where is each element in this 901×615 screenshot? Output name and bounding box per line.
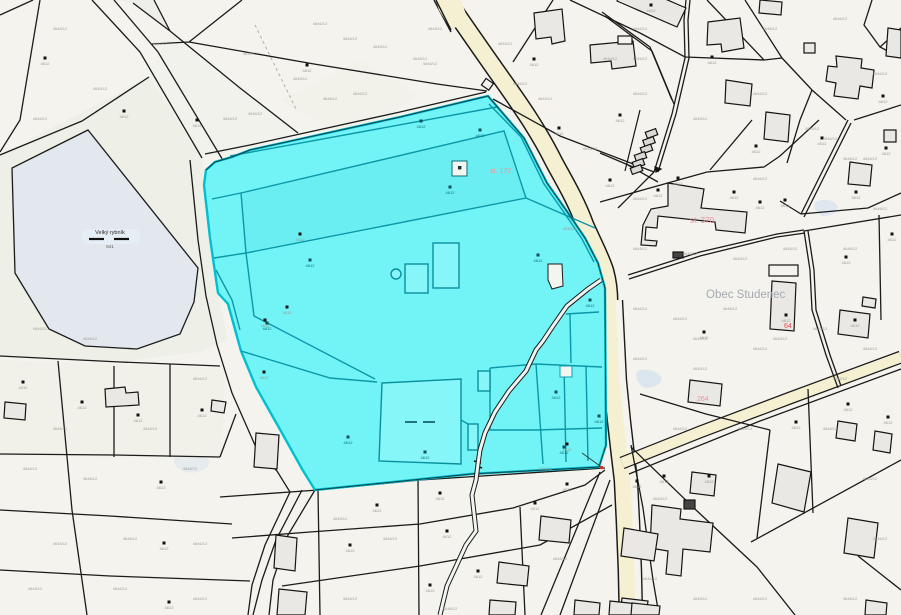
svg-text:4646/12: 4646/12 <box>738 426 753 431</box>
svg-text:Velký rybník: Velký rybník <box>95 230 125 236</box>
svg-text:4646/12: 4646/12 <box>343 596 358 601</box>
svg-text:4646/12: 4646/12 <box>863 156 878 161</box>
svg-text:4646/12: 4646/12 <box>753 176 768 181</box>
svg-text:64: 64 <box>784 323 792 330</box>
svg-text:4612: 4612 <box>595 419 605 424</box>
svg-text:4646/12: 4646/12 <box>843 246 858 251</box>
svg-text:4646/12: 4646/12 <box>693 366 708 371</box>
svg-text:4612: 4612 <box>752 149 762 154</box>
svg-text:4612: 4612 <box>708 60 718 65</box>
svg-text:4646/12: 4646/12 <box>693 336 708 341</box>
svg-text:4612: 4612 <box>882 151 892 156</box>
svg-text:4646/12: 4646/12 <box>753 91 768 96</box>
svg-text:4612: 4612 <box>756 205 766 210</box>
svg-text:4612: 4612 <box>373 508 383 513</box>
svg-text:4612: 4612 <box>818 141 828 146</box>
svg-text:4646/12: 4646/12 <box>683 251 698 256</box>
svg-text:4646/12: 4646/12 <box>833 376 848 381</box>
svg-text:4646/12: 4646/12 <box>583 146 598 151</box>
svg-text:4612: 4612 <box>134 418 144 423</box>
svg-text:4646/12: 4646/12 <box>313 21 328 26</box>
svg-text:4646/12: 4646/12 <box>513 81 528 86</box>
svg-text:4646/12: 4646/12 <box>813 326 828 331</box>
svg-text:4612: 4612 <box>563 487 573 492</box>
svg-text:4612: 4612 <box>879 99 889 104</box>
svg-text:4612: 4612 <box>41 61 51 66</box>
svg-text:4612: 4612 <box>792 425 802 430</box>
svg-text:4612: 4612 <box>476 133 486 138</box>
svg-text:4612: 4612 <box>306 263 316 268</box>
svg-text:4612: 4612 <box>421 455 431 460</box>
svg-text:4646/12: 4646/12 <box>823 136 838 141</box>
svg-text:4646/12: 4646/12 <box>33 326 48 331</box>
svg-text:4646/12: 4646/12 <box>553 556 568 561</box>
svg-text:4612: 4612 <box>888 237 898 242</box>
svg-text:4612: 4612 <box>443 534 453 539</box>
svg-text:4646/12: 4646/12 <box>83 336 98 341</box>
svg-text:4646/12: 4646/12 <box>773 336 788 341</box>
svg-text:4612: 4612 <box>346 548 356 553</box>
svg-text:4646/12: 4646/12 <box>423 61 438 66</box>
svg-text:4612: 4612 <box>446 190 456 195</box>
svg-text:4646/12: 4646/12 <box>833 16 848 21</box>
svg-text:4646/12: 4646/12 <box>633 306 648 311</box>
svg-text:Obec Studenec: Obec Studenec <box>706 289 786 301</box>
svg-text:4646/12: 4646/12 <box>873 206 888 211</box>
svg-text:4646/12: 4646/12 <box>53 26 68 31</box>
svg-text:4612: 4612 <box>283 310 293 315</box>
svg-text:4646/12: 4646/12 <box>223 116 238 121</box>
svg-text:4612: 4612 <box>165 605 175 610</box>
svg-text:4646/12: 4646/12 <box>783 246 798 251</box>
svg-text:4646/12: 4646/12 <box>633 246 648 251</box>
svg-text:4646/12: 4646/12 <box>343 36 358 41</box>
svg-text:4646/12: 4646/12 <box>723 306 738 311</box>
svg-text:4612: 4612 <box>781 203 791 208</box>
svg-text:4646/12: 4646/12 <box>733 256 748 261</box>
svg-text:4612: 4612 <box>426 588 436 593</box>
svg-text:4646/12: 4646/12 <box>143 426 158 431</box>
svg-text:4646/12: 4646/12 <box>863 346 878 351</box>
svg-text:4646/12: 4646/12 <box>843 156 858 161</box>
svg-text:4646/12: 4646/12 <box>843 596 858 601</box>
svg-text:4646/12: 4646/12 <box>443 606 458 611</box>
svg-text:4646/12: 4646/12 <box>673 426 688 431</box>
svg-text:641: 641 <box>106 244 114 249</box>
svg-text:4646/12: 4646/12 <box>498 41 513 46</box>
svg-text:4646/12: 4646/12 <box>53 426 68 431</box>
svg-text:4646/12: 4646/12 <box>28 586 43 591</box>
svg-text:4612: 4612 <box>530 62 540 67</box>
svg-text:4612: 4612 <box>263 326 273 331</box>
svg-text:4612: 4612 <box>531 506 541 511</box>
svg-text:4646/12: 4646/12 <box>538 466 553 471</box>
svg-text:4646/12: 4646/12 <box>805 126 820 131</box>
svg-text:4612: 4612 <box>534 258 544 263</box>
svg-text:4646/12: 4646/12 <box>633 26 648 31</box>
svg-text:4646/12: 4646/12 <box>383 536 398 541</box>
svg-text:4646/12: 4646/12 <box>863 476 878 481</box>
svg-text:4612: 4612 <box>616 118 626 123</box>
svg-text:4646/12: 4646/12 <box>193 541 208 546</box>
svg-text:4646/12: 4646/12 <box>333 516 348 521</box>
svg-text:4612: 4612 <box>705 479 715 484</box>
svg-text:4646/12: 4646/12 <box>873 536 888 541</box>
svg-text:4646/12: 4646/12 <box>693 596 708 601</box>
svg-text:4646/12: 4646/12 <box>693 116 708 121</box>
svg-text:4646/12: 4646/12 <box>643 576 658 581</box>
svg-text:4646/12: 4646/12 <box>823 426 838 431</box>
svg-text:4646/12: 4646/12 <box>293 76 308 81</box>
svg-text:4646/12: 4646/12 <box>563 226 578 231</box>
svg-text:4646/12: 4646/12 <box>673 316 688 321</box>
svg-text:4646/12: 4646/12 <box>763 26 778 31</box>
svg-text:4612: 4612 <box>560 450 570 455</box>
svg-text:264: 264 <box>697 396 709 403</box>
svg-text:4612: 4612 <box>884 420 894 425</box>
svg-text:4612: 4612 <box>157 485 167 490</box>
svg-text:4646/12: 4646/12 <box>633 91 648 96</box>
svg-text:st. 370: st. 370 <box>690 216 715 225</box>
svg-text:4646/12: 4646/12 <box>353 91 368 96</box>
svg-text:4646/12: 4646/12 <box>193 376 208 381</box>
svg-text:4612: 4612 <box>120 114 130 119</box>
svg-text:4612: 4612 <box>844 407 854 412</box>
svg-text:4612: 4612 <box>296 237 306 242</box>
svg-text:4646/12: 4646/12 <box>873 71 888 76</box>
svg-text:4612: 4612 <box>586 303 596 308</box>
svg-text:4646/12: 4646/12 <box>153 41 168 46</box>
svg-text:4646/12: 4646/12 <box>243 51 258 56</box>
svg-text:4646/12: 4646/12 <box>603 56 618 61</box>
svg-text:4646/12: 4646/12 <box>753 596 768 601</box>
svg-text:4612: 4612 <box>654 193 664 198</box>
svg-text:4646/12: 4646/12 <box>83 476 98 481</box>
svg-text:4646/12: 4646/12 <box>323 96 338 101</box>
svg-text:4612: 4612 <box>417 124 427 129</box>
svg-text:4612: 4612 <box>633 484 643 489</box>
svg-text:4612: 4612 <box>552 395 562 400</box>
svg-text:4612: 4612 <box>436 496 446 501</box>
svg-text:4612: 4612 <box>851 323 861 328</box>
svg-text:4612: 4612 <box>674 181 684 186</box>
svg-text:4646/12: 4646/12 <box>653 496 668 501</box>
svg-text:4646/12: 4646/12 <box>538 96 553 101</box>
svg-text:4612: 4612 <box>606 183 616 188</box>
svg-text:4612: 4612 <box>660 479 670 484</box>
svg-text:4646/12: 4646/12 <box>373 44 388 49</box>
svg-text:4646/12: 4646/12 <box>633 196 648 201</box>
svg-text:4612: 4612 <box>842 260 852 265</box>
svg-text:4612: 4612 <box>730 195 740 200</box>
svg-text:4646/12: 4646/12 <box>183 466 198 471</box>
svg-text:4646/12: 4646/12 <box>113 586 128 591</box>
svg-text:4646/12: 4646/12 <box>248 111 263 116</box>
svg-text:4612: 4612 <box>198 413 208 418</box>
svg-text:4612: 4612 <box>303 68 313 73</box>
svg-text:4646/12: 4646/12 <box>93 86 108 91</box>
svg-text:4612: 4612 <box>260 375 270 380</box>
svg-text:4646/12: 4646/12 <box>633 356 648 361</box>
svg-text:4612: 4612 <box>78 405 88 410</box>
svg-text:4646/12: 4646/12 <box>23 466 38 471</box>
svg-text:4646/12: 4646/12 <box>123 536 138 541</box>
svg-text:4646/12: 4646/12 <box>193 596 208 601</box>
svg-text:st. 172: st. 172 <box>490 168 511 175</box>
svg-text:4612: 4612 <box>19 385 29 390</box>
svg-text:4612: 4612 <box>647 8 657 13</box>
svg-text:4646/12: 4646/12 <box>428 26 443 31</box>
svg-text:4646/12: 4646/12 <box>53 541 68 546</box>
svg-text:4612: 4612 <box>852 195 862 200</box>
svg-text:4646/12: 4646/12 <box>633 56 648 61</box>
svg-text:4612: 4612 <box>474 574 484 579</box>
svg-text:4612: 4612 <box>160 546 170 551</box>
svg-text:4612: 4612 <box>344 440 354 445</box>
svg-text:4612: 4612 <box>555 131 565 136</box>
svg-text:4612: 4612 <box>193 123 203 128</box>
svg-text:4646/12: 4646/12 <box>753 346 768 351</box>
svg-text:4646/12: 4646/12 <box>33 116 48 121</box>
